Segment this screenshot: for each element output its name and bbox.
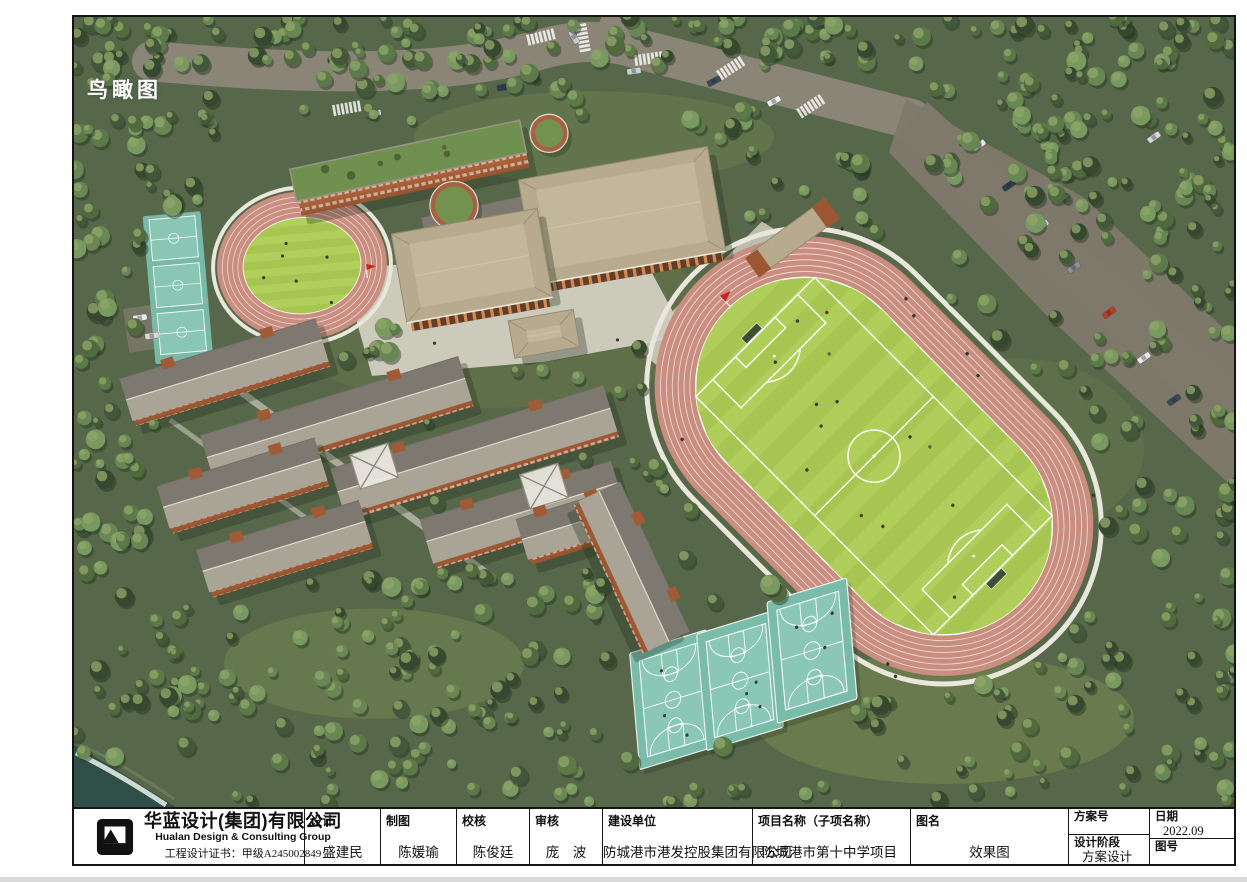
field-label: 项目名称（子项名称）	[758, 812, 878, 829]
field-value: 防城港市港发控股集团有限公司	[603, 841, 752, 861]
title-block: 华蓝设计(集团)有限公司 Hualan Design & Consulting …	[74, 807, 1234, 864]
field-drawing-name: 图名 效果图	[910, 809, 1068, 864]
page-edge	[0, 877, 1247, 882]
campus-birdseye-scene	[74, 17, 1234, 807]
company-block: 华蓝设计(集团)有限公司 Hualan Design & Consulting …	[74, 809, 304, 864]
field-label: 图号	[1155, 841, 1229, 854]
field-label: 设计阶段	[1074, 837, 1144, 850]
field-value: 陈媛瑜	[381, 841, 456, 861]
field-value: 2022.09	[1155, 824, 1229, 838]
field-label: 审核	[535, 812, 559, 829]
field-project-name: 项目名称（子项名称） 防城港市第十中学项目	[752, 809, 910, 864]
field-value: 效果图	[911, 841, 1068, 861]
field-designer: 设计 盛建民	[304, 809, 380, 864]
company-cert: 工程设计证书：甲级A245002849	[165, 845, 321, 861]
field-client: 建设单位 防城港市港发控股集团有限公司	[602, 809, 752, 864]
field-design-stage: 设计阶段 方案设计	[1069, 835, 1149, 864]
field-drawing-no: 图号	[1150, 839, 1234, 864]
hualan-logo-icon	[96, 818, 134, 856]
field-reviewer: 审核 庞 波	[529, 809, 602, 864]
field-label: 建设单位	[608, 812, 656, 829]
field-label: 校核	[462, 812, 486, 829]
drawing-frame: 鸟瞰图 华蓝设计(集团)有限公司 Hualan Design & Consult…	[72, 15, 1236, 866]
field-scheme-no: 方案号	[1069, 809, 1149, 835]
field-date: 日期 2022.09	[1150, 809, 1234, 839]
scheme-stage-cell: 方案号 设计阶段 方案设计	[1068, 809, 1149, 864]
field-checker: 校核 陈俊廷	[456, 809, 529, 864]
field-label: 制图	[386, 812, 410, 829]
date-number-cell: 日期 2022.09 图号	[1149, 809, 1234, 864]
field-drafter: 制图 陈媛瑜	[380, 809, 456, 864]
field-label: 设计	[310, 812, 334, 829]
field-label: 方案号	[1074, 811, 1144, 824]
field-label: 日期	[1155, 811, 1229, 824]
field-value: 陈俊廷	[457, 841, 529, 861]
view-title: 鸟瞰图	[87, 74, 162, 104]
aerial-rendering: 鸟瞰图	[74, 17, 1234, 807]
field-value: 庞 波	[530, 841, 602, 861]
field-label: 图名	[916, 812, 940, 829]
drawing-sheet: { "page": { "view_label": "鸟瞰图" }, "rend…	[0, 0, 1247, 882]
field-value: 盛建民	[305, 841, 380, 861]
field-value: 方案设计	[1074, 850, 1144, 864]
field-value: 防城港市第十中学项目	[753, 841, 910, 861]
